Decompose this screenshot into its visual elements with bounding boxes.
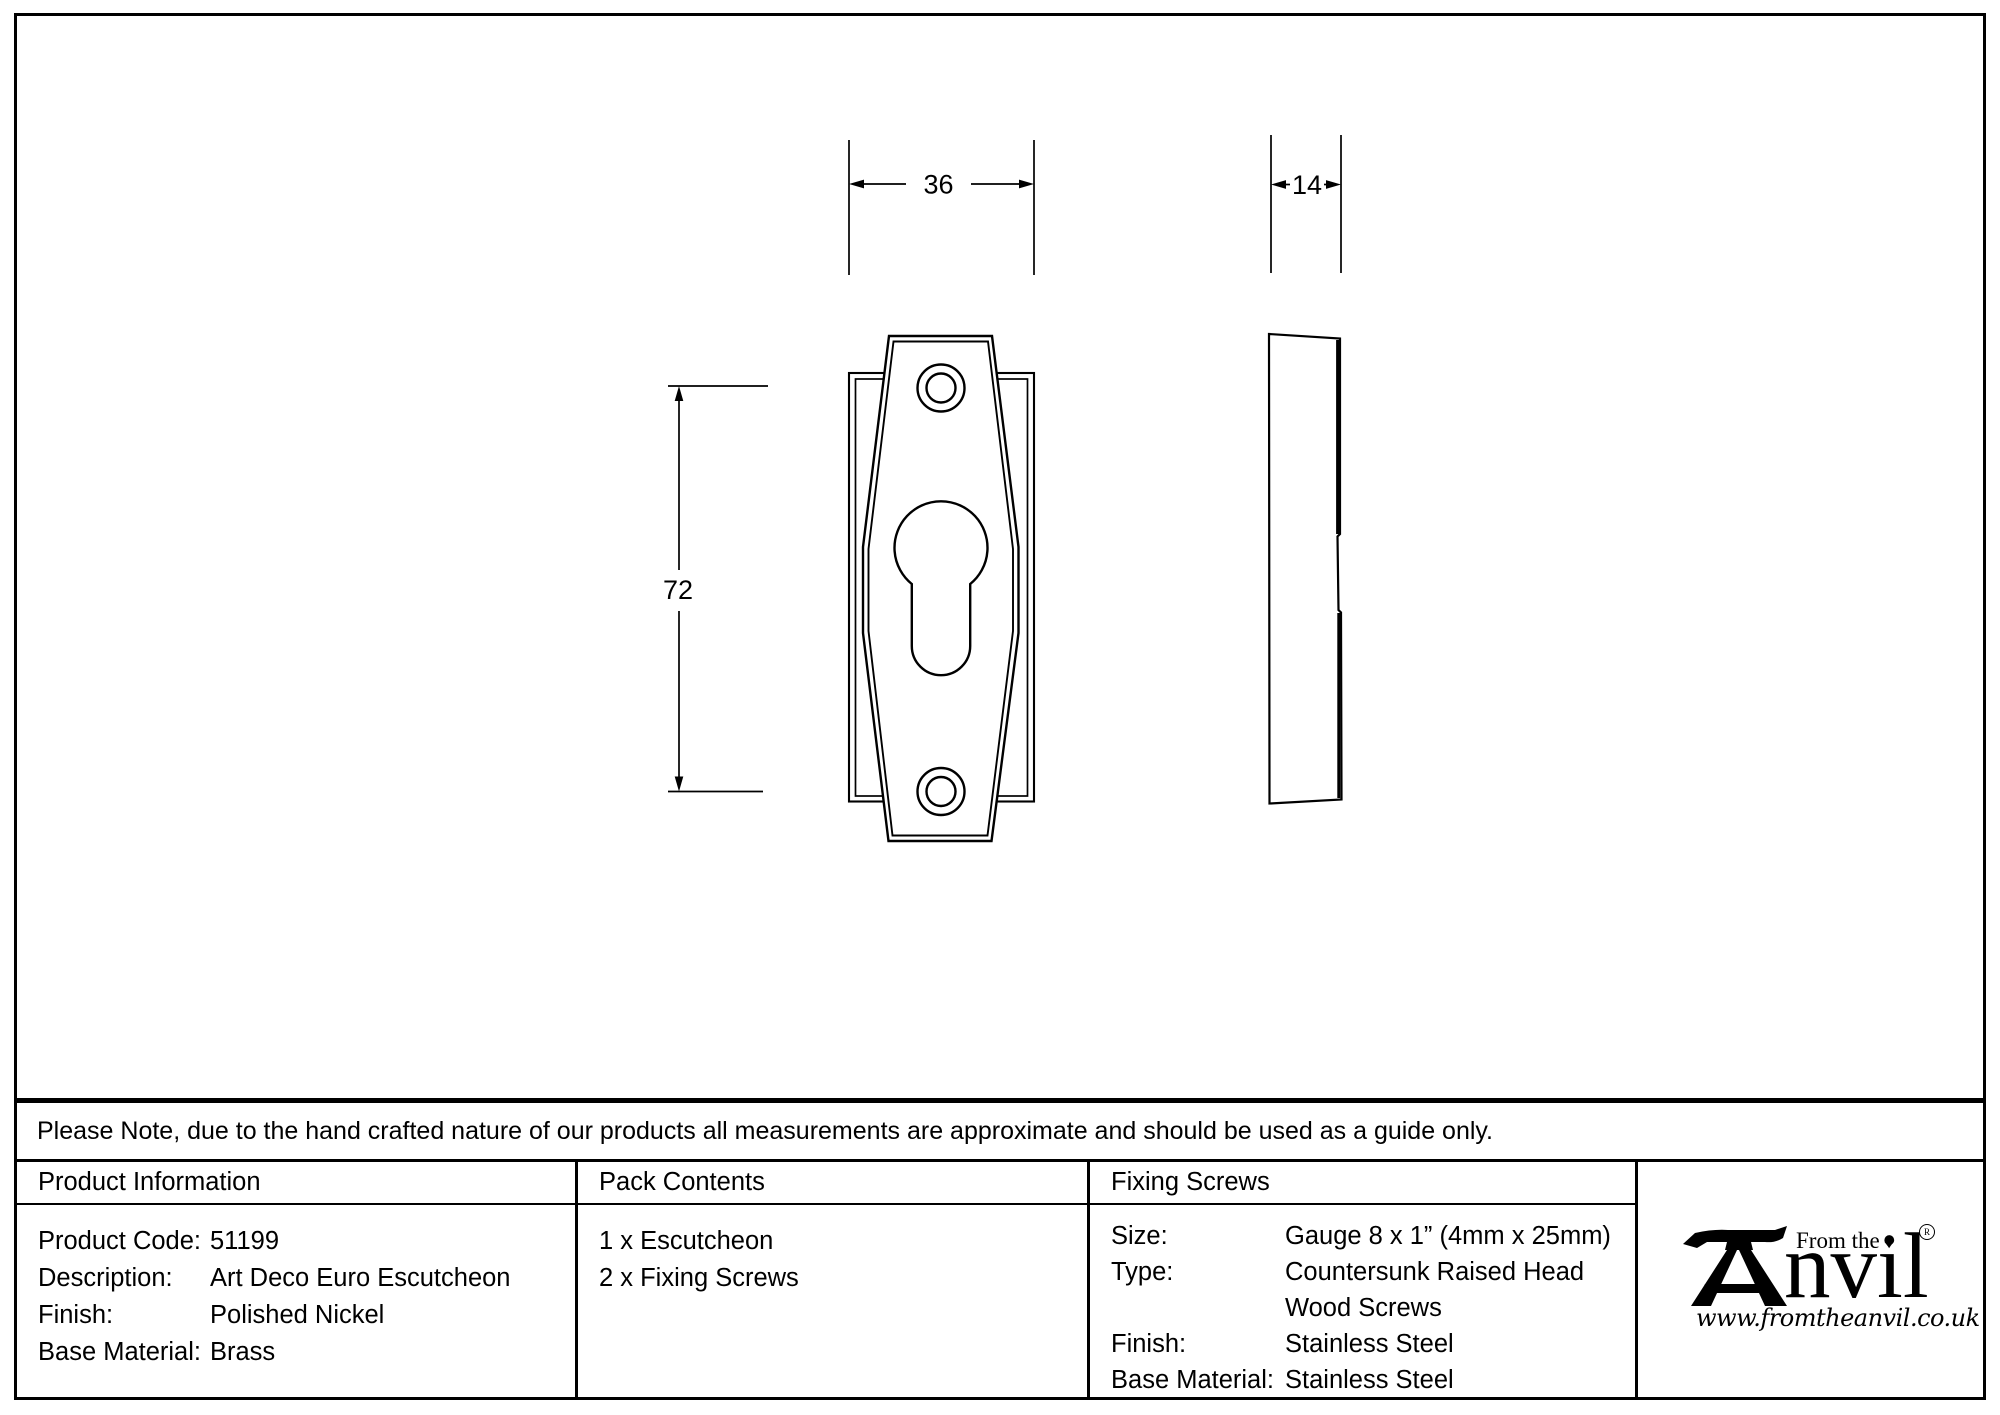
header-label: Product Information <box>38 1168 261 1197</box>
escutcheon-front-view <box>849 336 1034 841</box>
row-value: 51199 <box>210 1227 575 1256</box>
dimension-height-72: 72 <box>663 386 768 792</box>
dimension-depth-14: 14 <box>1271 135 1341 273</box>
fixing-screws-body: Size: Gauge 8 x 1” (4mm x 25mm) Type: Co… <box>1090 1205 1635 1398</box>
bottom-screw-hole-outer <box>918 768 965 815</box>
row-value: Wood Screws <box>1285 1294 1635 1323</box>
row-label: Description: <box>38 1264 210 1293</box>
row-label: Product Code: <box>38 1227 210 1256</box>
item-text: 2 x Fixing Screws <box>599 1264 799 1293</box>
logo-website-text: www.fromtheanvil.co.uk <box>1696 1304 1980 1332</box>
arrowhead-left <box>849 180 864 189</box>
table-row: Type: Countersunk Raised Head <box>1090 1255 1635 1291</box>
row-label: Finish: <box>38 1301 210 1330</box>
dimension-width-36: 36 <box>849 140 1034 275</box>
table-row: Wood Screws <box>1090 1291 1635 1327</box>
table-row: Finish: Polished Nickel <box>17 1297 575 1334</box>
row-label: Type: <box>1111 1258 1285 1287</box>
table-row: Base Material: Brass <box>17 1334 575 1371</box>
registered-trademark-icon: R <box>1919 1224 1935 1240</box>
technical-drawing: 36 14 72 <box>0 0 2000 1104</box>
header-label: Pack Contents <box>599 1168 765 1197</box>
height-dimension-text: 72 <box>663 575 693 605</box>
table-row: Size: Gauge 8 x 1” (4mm x 25mm) <box>1090 1219 1635 1255</box>
fixing-screws-column: Fixing Screws Size: Gauge 8 x 1” (4mm x … <box>1090 1162 1638 1397</box>
pack-contents-header: Pack Contents <box>578 1162 1087 1205</box>
arrowhead-left <box>1271 180 1286 189</box>
info-table: Product Information Product Code: 51199 … <box>17 1159 1983 1397</box>
row-value: Stainless Steel <box>1285 1330 1635 1359</box>
anvil-icon <box>1683 1226 1793 1310</box>
pack-contents-column: Pack Contents 1 x Escutcheon 2 x Fixing … <box>578 1162 1090 1397</box>
row-label: Base Material: <box>1111 1366 1285 1395</box>
table-row: Description: Art Deco Euro Escutcheon <box>17 1260 575 1297</box>
arrowhead-up <box>675 386 684 401</box>
depth-dimension-text: 14 <box>1292 170 1322 200</box>
top-screw-hole-outer <box>918 365 965 412</box>
pack-contents-body: 1 x Escutcheon 2 x Fixing Screws <box>578 1205 1087 1297</box>
arrowhead-right <box>1019 180 1034 189</box>
table-row: Finish: Stainless Steel <box>1090 1326 1635 1362</box>
header-label: Fixing Screws <box>1111 1168 1270 1197</box>
row-value: Polished Nickel <box>210 1301 575 1330</box>
row-value: Art Deco Euro Escutcheon <box>210 1264 575 1293</box>
arrowhead-down <box>675 777 684 792</box>
escutcheon-side-view <box>1269 334 1342 804</box>
product-information-column: Product Information Product Code: 51199 … <box>17 1162 578 1397</box>
row-value: Gauge 8 x 1” (4mm x 25mm) <box>1285 1222 1635 1251</box>
list-item: 1 x Escutcheon <box>578 1223 1087 1260</box>
note-text: Please Note, due to the hand crafted nat… <box>37 1117 1493 1146</box>
width-dimension-text: 36 <box>923 170 953 200</box>
side-profile-outline <box>1269 334 1342 804</box>
row-value: Brass <box>210 1338 575 1367</box>
logo-brand-text: nvil <box>1784 1220 1929 1313</box>
table-row: Base Material: Stainless Steel <box>1090 1362 1635 1398</box>
brand-logo-cell: From the ♦ nvil R www.fromtheanvil.co.uk <box>1638 1162 1983 1397</box>
row-label: Size: <box>1111 1222 1285 1251</box>
item-text: 1 x Escutcheon <box>599 1227 773 1256</box>
product-spec-sheet: { "drawing": { "width_label": "36", "dep… <box>0 0 2000 1415</box>
row-value: Countersunk Raised Head <box>1285 1258 1635 1287</box>
note-band: Please Note, due to the hand crafted nat… <box>17 1101 1983 1159</box>
list-item: 2 x Fixing Screws <box>578 1260 1087 1297</box>
fixing-screws-header: Fixing Screws <box>1090 1162 1635 1205</box>
arrowhead-right <box>1326 180 1341 189</box>
row-label: Base Material: <box>38 1338 210 1367</box>
product-information-body: Product Code: 51199 Description: Art Dec… <box>17 1205 575 1371</box>
table-row: Product Code: 51199 <box>17 1223 575 1260</box>
row-value: Stainless Steel <box>1285 1366 1635 1395</box>
row-label: Finish: <box>1111 1330 1285 1359</box>
product-information-header: Product Information <box>17 1162 575 1205</box>
